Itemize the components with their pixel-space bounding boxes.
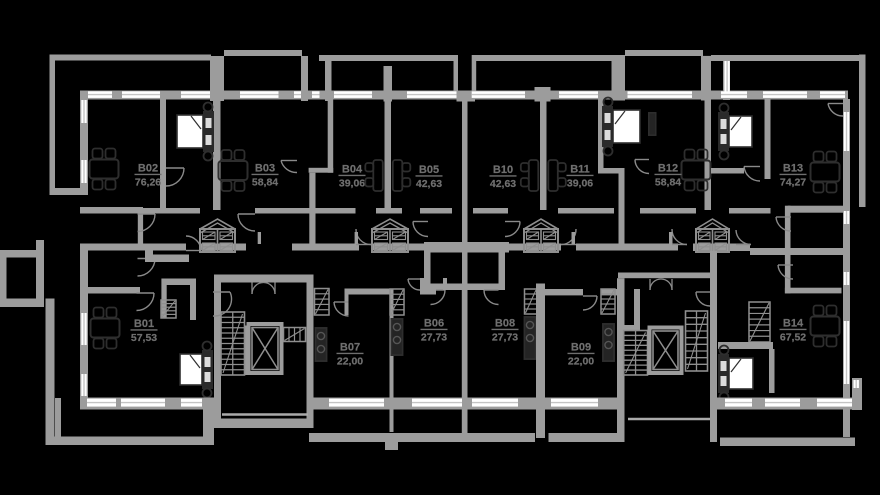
- svg-text:42,63: 42,63: [490, 178, 516, 190]
- svg-text:B03: B03: [255, 163, 275, 175]
- svg-text:22,00: 22,00: [568, 356, 594, 368]
- svg-text:B14: B14: [783, 318, 804, 330]
- svg-text:B11: B11: [570, 164, 590, 176]
- svg-text:B09: B09: [571, 342, 591, 354]
- svg-text:27,73: 27,73: [492, 332, 518, 344]
- svg-text:22,00: 22,00: [337, 356, 363, 368]
- svg-text:B07: B07: [340, 342, 360, 354]
- svg-text:B06: B06: [424, 318, 444, 330]
- svg-text:B08: B08: [495, 318, 515, 330]
- svg-text:57,53: 57,53: [131, 332, 157, 344]
- svg-text:B10: B10: [493, 164, 513, 176]
- svg-text:B01: B01: [134, 318, 154, 330]
- svg-text:42,63: 42,63: [416, 178, 442, 190]
- svg-text:39,06: 39,06: [339, 178, 365, 190]
- svg-text:B12: B12: [658, 163, 678, 175]
- svg-text:B02: B02: [138, 163, 158, 175]
- svg-text:B04: B04: [342, 164, 363, 176]
- svg-text:74,27: 74,27: [780, 177, 806, 189]
- svg-text:27,73: 27,73: [421, 332, 447, 344]
- svg-text:39,06: 39,06: [567, 178, 593, 190]
- svg-text:58,84: 58,84: [655, 177, 681, 189]
- svg-text:76,26: 76,26: [135, 177, 161, 189]
- svg-text:B05: B05: [419, 164, 439, 176]
- svg-text:B13: B13: [783, 163, 803, 175]
- svg-text:67,52: 67,52: [780, 332, 806, 344]
- svg-text:58,84: 58,84: [252, 177, 278, 189]
